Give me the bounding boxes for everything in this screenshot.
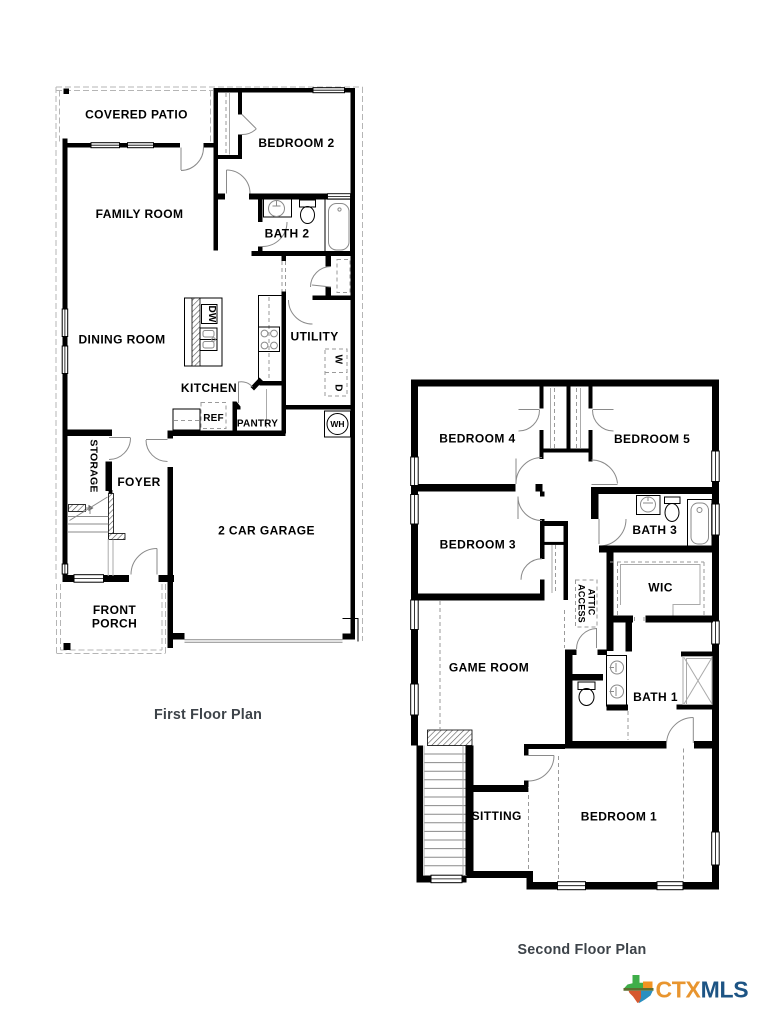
svg-text:FOYER: FOYER — [117, 475, 160, 489]
svg-text:FRONT: FRONT — [93, 603, 137, 617]
svg-text:PANTRY: PANTRY — [237, 418, 278, 429]
svg-text:BEDROOM 4: BEDROOM 4 — [439, 431, 515, 445]
svg-text:COVERED PATIO: COVERED PATIO — [85, 108, 188, 122]
svg-text:ACCESS: ACCESS — [577, 584, 587, 623]
svg-text:SITTING: SITTING — [472, 809, 522, 823]
svg-text:2 CAR GARAGE: 2 CAR GARAGE — [218, 524, 315, 538]
svg-text:BATH 1: BATH 1 — [633, 690, 678, 704]
svg-text:DINING ROOM: DINING ROOM — [78, 333, 165, 347]
svg-text:FAMILY ROOM: FAMILY ROOM — [96, 207, 184, 221]
svg-text:KITCHEN: KITCHEN — [181, 381, 237, 395]
svg-text:BATH 3: BATH 3 — [632, 523, 677, 537]
svg-text:W: W — [333, 355, 344, 365]
svg-text:REF: REF — [203, 413, 224, 424]
svg-text:ATTIC: ATTIC — [587, 589, 597, 616]
svg-text:BEDROOM 5: BEDROOM 5 — [614, 432, 690, 446]
svg-text:UTILITY: UTILITY — [291, 330, 339, 344]
svg-text:BATH 2: BATH 2 — [265, 227, 310, 241]
svg-text:Second Floor Plan: Second Floor Plan — [518, 942, 647, 958]
svg-text:BEDROOM 2: BEDROOM 2 — [258, 136, 334, 150]
svg-text:GAME ROOM: GAME ROOM — [449, 661, 529, 675]
svg-text:BEDROOM 3: BEDROOM 3 — [440, 538, 516, 552]
svg-text:CTXMLS: CTXMLS — [656, 977, 749, 1003]
svg-text:DW: DW — [206, 305, 217, 322]
svg-text:WIC: WIC — [648, 580, 673, 594]
svg-text:First Floor Plan: First Floor Plan — [154, 707, 262, 723]
svg-text:STORAGE: STORAGE — [88, 439, 100, 492]
svg-text:D: D — [333, 384, 344, 391]
svg-text:WH: WH — [330, 419, 344, 429]
svg-text:BEDROOM 1: BEDROOM 1 — [581, 809, 657, 823]
svg-text:PORCH: PORCH — [92, 617, 137, 631]
